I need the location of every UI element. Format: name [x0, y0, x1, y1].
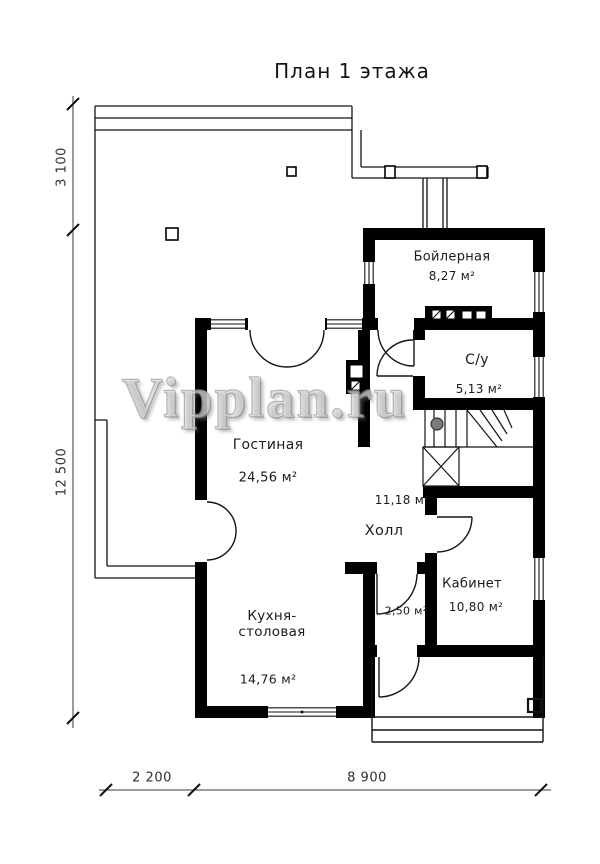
- room-label-kitchen-line2: столовая: [238, 624, 305, 640]
- staircase: [423, 410, 533, 447]
- room-area-vestibule: 2,50 м²: [385, 605, 428, 618]
- porch: [372, 657, 543, 742]
- room-label-office: Кабинет: [442, 577, 502, 592]
- door-terrace-left-double: [207, 502, 236, 560]
- floor-plan-page: План 1 этажа Бойлерная 8,27 м² С/у 5,13 …: [0, 0, 600, 864]
- door-entry: [379, 657, 419, 697]
- room-label-kitchen-line1: Кухня-: [247, 608, 296, 624]
- dimension-left-main: 12 500: [55, 448, 70, 497]
- room-area-boiler: 8,27 м²: [429, 269, 476, 283]
- room-label-living: Гостиная: [233, 437, 304, 453]
- stair-void-marker: [423, 447, 459, 486]
- window-kitchen-marker: [301, 711, 304, 714]
- dimension-bottom-left: 2 200: [132, 771, 172, 786]
- page-title: План 1 этажа: [274, 59, 430, 83]
- room-label-hall: Холл: [365, 523, 404, 539]
- door-terrace-living-double: [250, 330, 324, 367]
- room-area-hall: 11,18 м²: [375, 493, 429, 507]
- room-label-bathroom: С/у: [465, 352, 489, 368]
- dimension-lines: [67, 96, 551, 796]
- room-area-bathroom: 5,13 м²: [456, 382, 503, 396]
- door-boiler: [378, 330, 414, 366]
- dimension-left-top: 3 100: [55, 147, 70, 187]
- watermark: Vipplan.ru: [122, 366, 408, 431]
- dimension-bottom-main: 8 900: [347, 771, 387, 786]
- room-area-kitchen: 14,76 м²: [240, 672, 297, 687]
- room-area-living: 24,56 м²: [239, 471, 298, 486]
- door-office: [437, 517, 472, 552]
- room-label-boiler: Бойлерная: [414, 250, 491, 265]
- room-area-office: 10,80 м²: [449, 600, 503, 614]
- stair-newel-post: [431, 418, 443, 430]
- floor-plan-drawing: [0, 0, 600, 864]
